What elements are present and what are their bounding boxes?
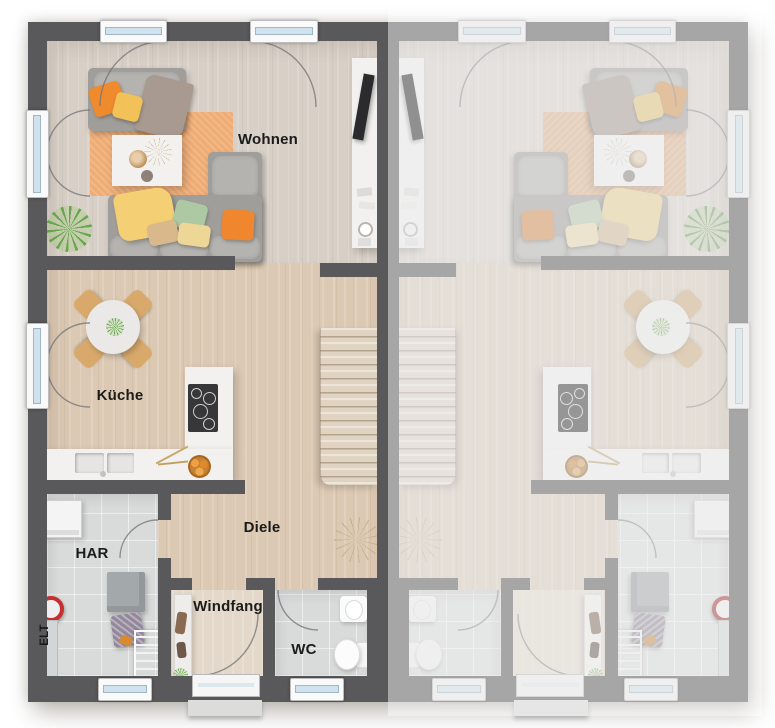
- window-kitchen-left: [26, 323, 49, 409]
- front-door-glass: [522, 683, 578, 687]
- window-glass: [735, 328, 743, 404]
- window-glass: [105, 27, 162, 35]
- room-label-wc: WC: [277, 641, 331, 658]
- entry-step: [188, 700, 262, 716]
- window-utility-bottom: [98, 678, 152, 701]
- room-label-hallway: Diele: [227, 519, 297, 536]
- window-utility-bottom: [624, 678, 678, 701]
- unit-left: Wohnen Küche Diele HAR ELT Windfang WC: [28, 22, 388, 702]
- room-label-living: Wohnen: [223, 131, 313, 148]
- room-label-vestibule: Windfang: [185, 598, 271, 615]
- window-glass: [295, 685, 339, 693]
- front-door-glass: [198, 683, 254, 687]
- window-glass: [33, 115, 41, 193]
- window-glass: [463, 27, 521, 35]
- window-living-top-2: [250, 20, 318, 43]
- window-glass: [33, 328, 41, 404]
- window-glass: [437, 685, 481, 693]
- window-glass: [735, 115, 743, 193]
- entry-step: [514, 700, 588, 716]
- window-glass: [629, 685, 673, 693]
- unit-left-inner: Wohnen Küche Diele HAR ELT Windfang WC: [28, 22, 388, 702]
- front-door: [192, 674, 260, 697]
- window-glass: [614, 27, 671, 35]
- window-glass: [255, 27, 313, 35]
- unit-right: [388, 22, 748, 702]
- room-label-electrical: ELT: [39, 615, 53, 655]
- window-living-top-1: [100, 20, 167, 43]
- door-swing-arcs: [388, 22, 748, 702]
- window-living-top-1: [609, 20, 676, 43]
- window-glass: [103, 685, 147, 693]
- room-label-utility: HAR: [62, 545, 122, 562]
- window-living-left: [727, 110, 750, 198]
- front-door: [516, 674, 584, 697]
- room-label-kitchen: Küche: [87, 387, 153, 404]
- window-living-top-2: [458, 20, 526, 43]
- unit-right-inner: [388, 22, 748, 702]
- window-wc-bottom: [432, 678, 486, 701]
- window-kitchen-left: [727, 323, 750, 409]
- window-wc-bottom: [290, 678, 344, 701]
- window-living-left: [26, 110, 49, 198]
- floor-plan: Wohnen Küche Diele HAR ELT Windfang WC: [28, 22, 748, 702]
